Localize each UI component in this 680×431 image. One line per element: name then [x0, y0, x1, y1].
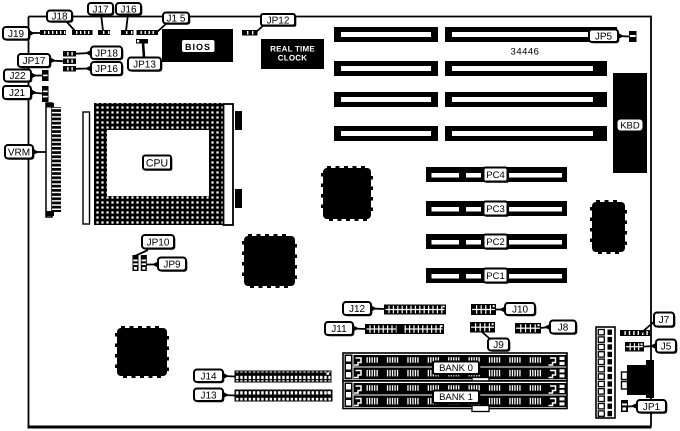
svg-text:JP1: JP1: [643, 402, 661, 413]
svg-text:J17: J17: [92, 4, 109, 15]
svg-text:REAL TIME: REAL TIME: [270, 45, 315, 54]
svg-text:JP13: JP13: [133, 60, 156, 71]
svg-text:JP16: JP16: [95, 64, 118, 75]
svg-text:PC3: PC3: [486, 204, 504, 215]
svg-text:VRM: VRM: [8, 147, 30, 158]
svg-text:34446: 34446: [511, 47, 540, 58]
svg-text:J22: J22: [9, 71, 26, 82]
svg-text:BANK 0: BANK 0: [439, 363, 473, 374]
svg-text:JP18: JP18: [95, 48, 118, 59]
svg-text:CPU: CPU: [146, 157, 168, 169]
svg-text:J13: J13: [200, 390, 217, 401]
svg-text:J14: J14: [200, 371, 217, 382]
svg-text:J8: J8: [558, 323, 569, 334]
svg-text:J18: J18: [51, 12, 68, 23]
svg-text:JP10: JP10: [147, 237, 170, 248]
svg-text:KBD: KBD: [620, 120, 640, 131]
svg-text:CLOCK: CLOCK: [278, 54, 307, 63]
svg-text:PC1: PC1: [486, 271, 504, 282]
svg-text:J12: J12: [349, 304, 366, 315]
svg-text:BIOS: BIOS: [185, 42, 211, 52]
svg-text:JP5: JP5: [595, 31, 613, 42]
svg-text:J10: J10: [512, 305, 529, 316]
svg-text:JP9: JP9: [163, 260, 181, 271]
svg-text:PC2: PC2: [486, 237, 504, 248]
svg-text:J1 5: J1 5: [167, 14, 186, 25]
svg-text:BANK 1: BANK 1: [439, 392, 473, 403]
svg-text:J16: J16: [120, 4, 137, 15]
svg-text:PC4: PC4: [486, 170, 504, 181]
svg-text:J19: J19: [8, 29, 25, 40]
svg-text:J7: J7: [659, 315, 670, 326]
svg-text:J11: J11: [331, 324, 347, 335]
svg-text:J9: J9: [493, 340, 504, 351]
svg-text:J5: J5: [661, 342, 672, 353]
svg-text:JP17: JP17: [23, 56, 46, 67]
svg-text:J21: J21: [9, 88, 26, 99]
svg-text:JP12: JP12: [267, 15, 290, 26]
